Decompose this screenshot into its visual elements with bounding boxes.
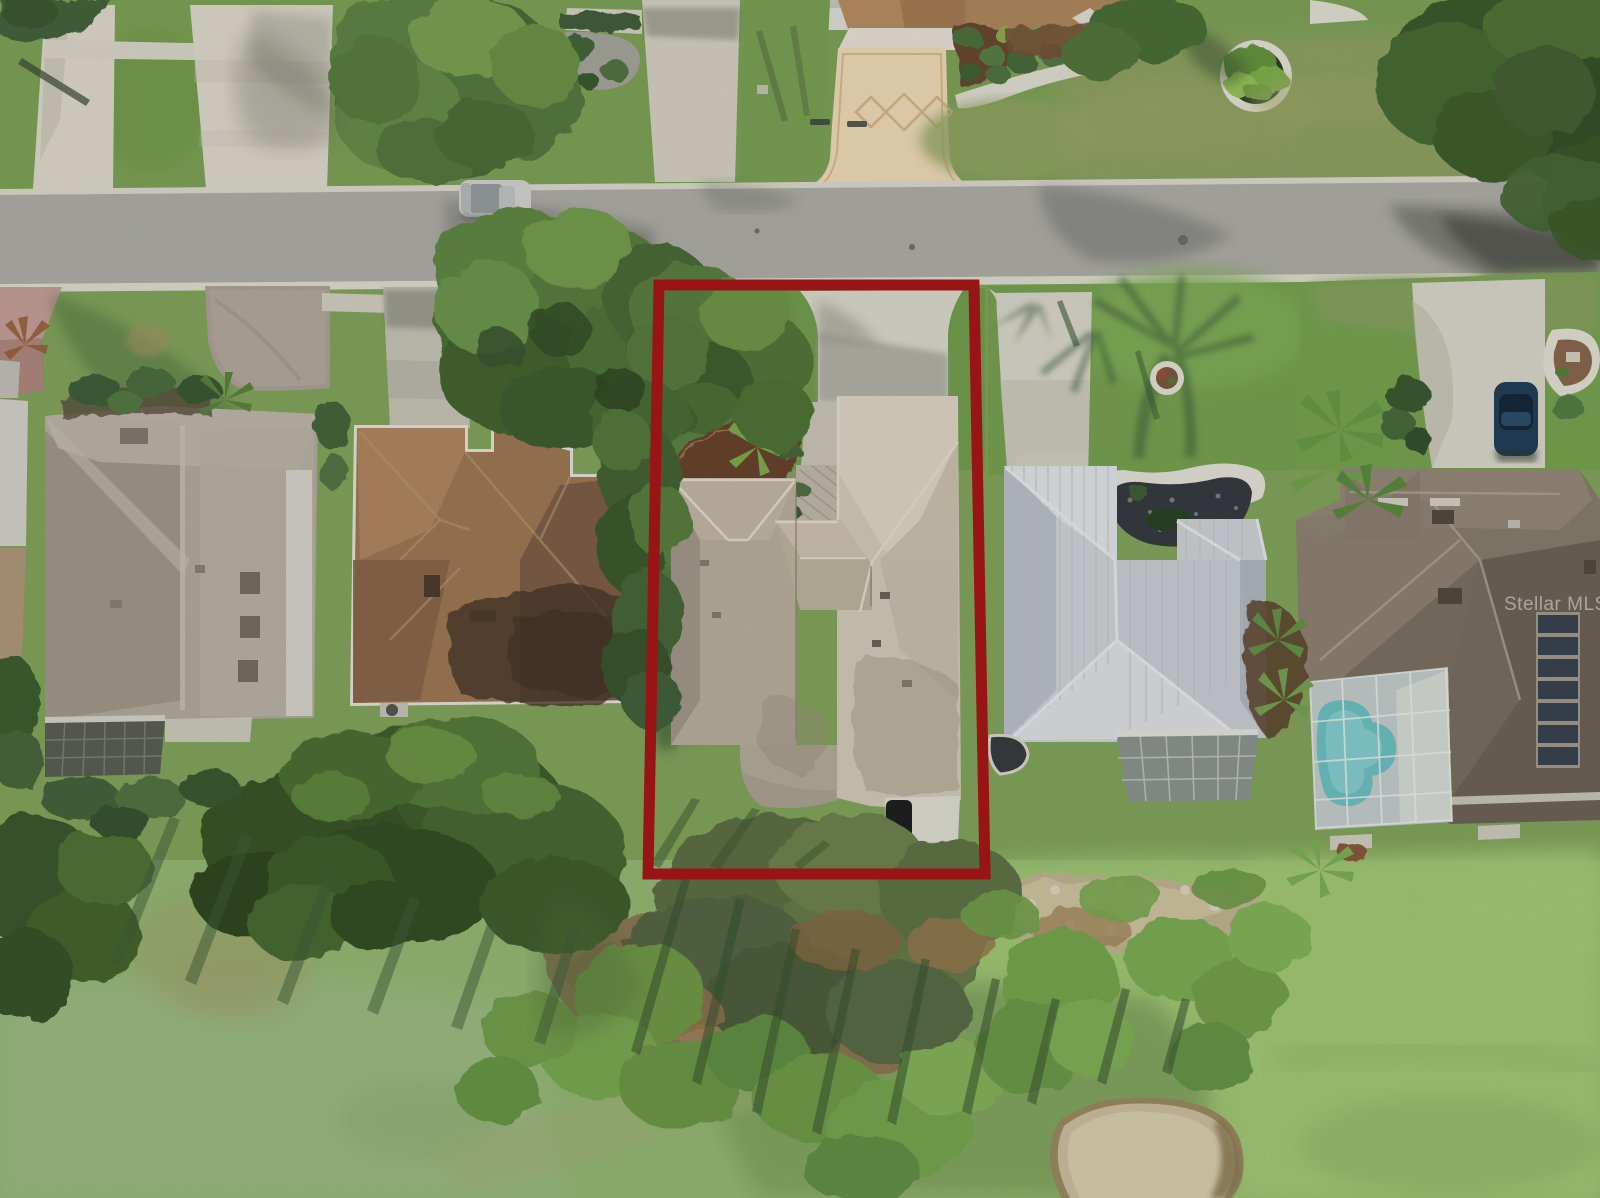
svg-text:Stellar MLS: Stellar MLS: [1504, 594, 1600, 615]
